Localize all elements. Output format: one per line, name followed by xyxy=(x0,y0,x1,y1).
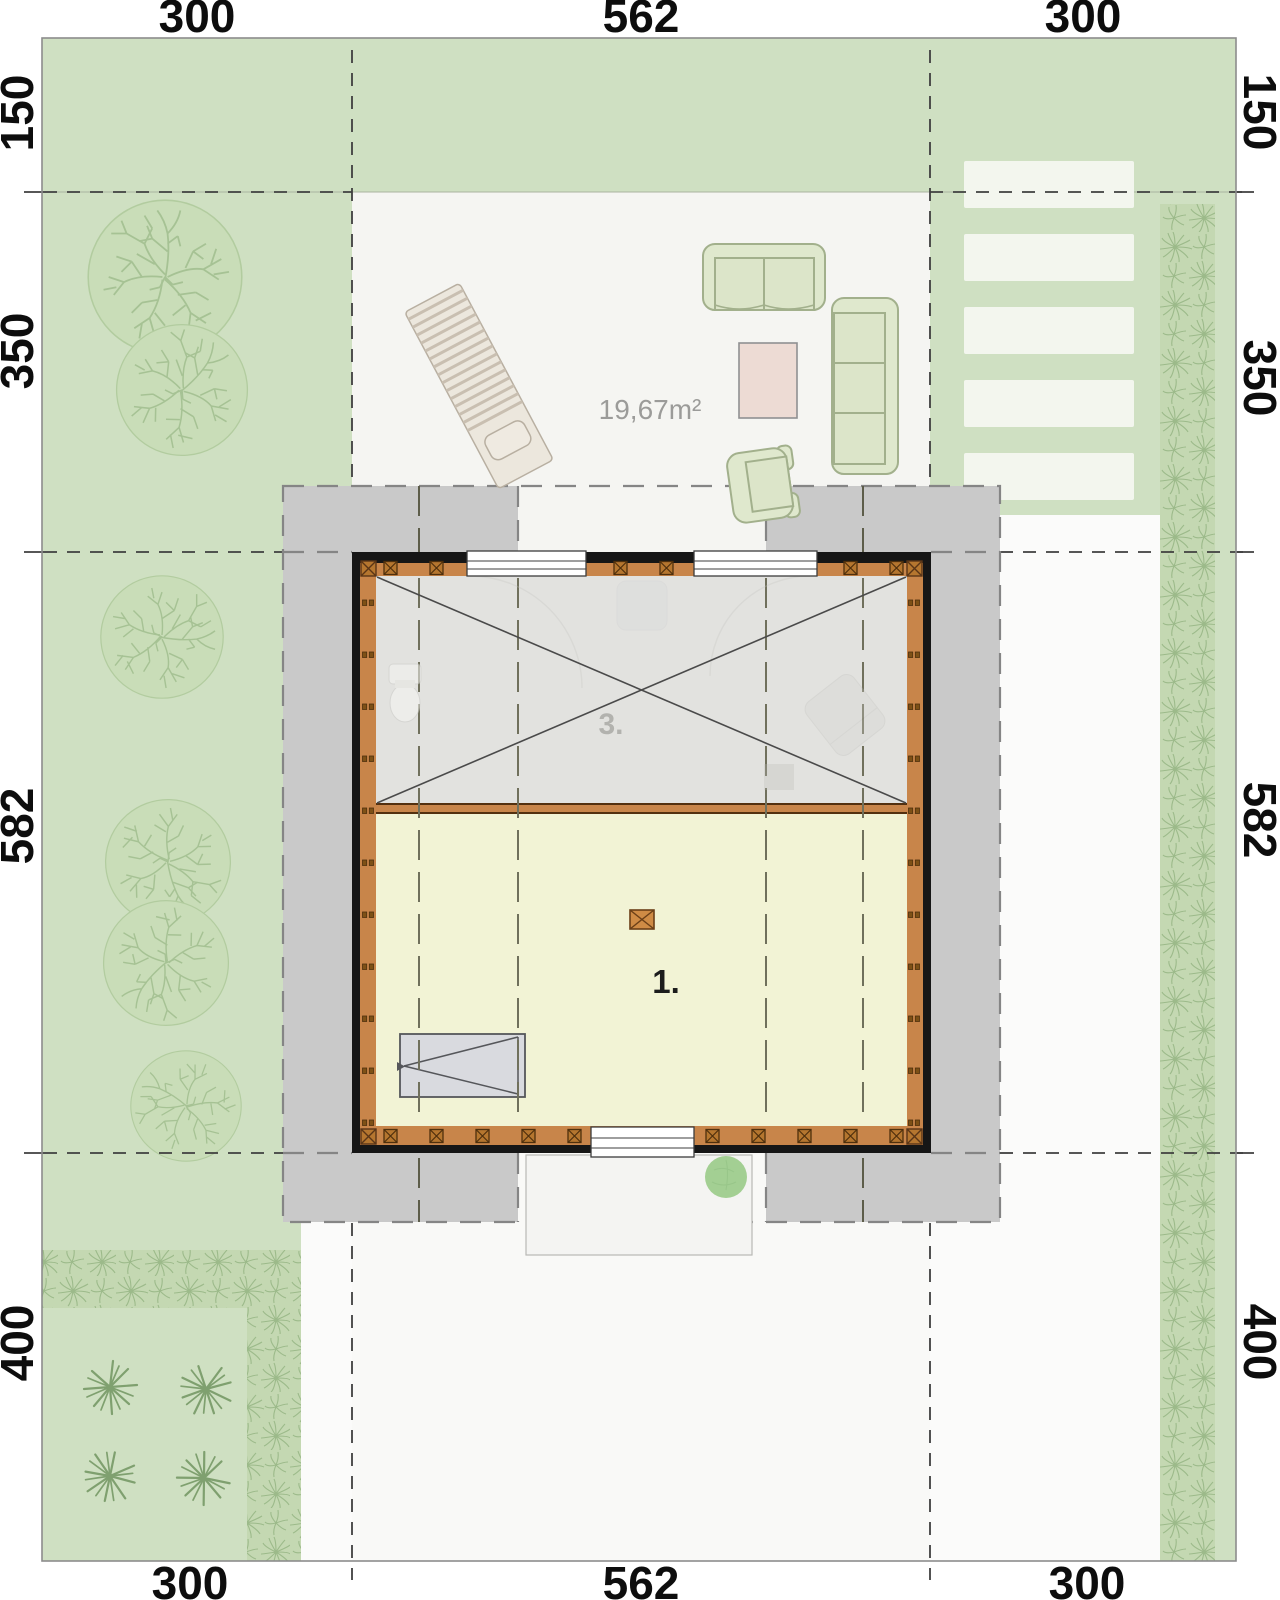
svg-text:350: 350 xyxy=(0,313,43,390)
svg-text:150: 150 xyxy=(0,75,43,152)
svg-text:400: 400 xyxy=(1234,1304,1280,1381)
svg-text:562: 562 xyxy=(603,1557,680,1600)
svg-text:150: 150 xyxy=(1234,74,1280,151)
svg-text:3.: 3. xyxy=(598,708,623,741)
svg-text:300: 300 xyxy=(1045,0,1122,42)
svg-text:19,67m²: 19,67m² xyxy=(599,394,702,425)
svg-text:300: 300 xyxy=(1049,1557,1126,1600)
svg-text:582: 582 xyxy=(1234,782,1280,859)
svg-text:300: 300 xyxy=(152,1557,229,1600)
svg-text:400: 400 xyxy=(0,1305,43,1382)
svg-text:582: 582 xyxy=(0,788,43,865)
svg-text:562: 562 xyxy=(603,0,680,42)
svg-text:350: 350 xyxy=(1234,340,1280,417)
svg-text:1.: 1. xyxy=(652,963,680,1000)
svg-text:300: 300 xyxy=(159,0,236,42)
